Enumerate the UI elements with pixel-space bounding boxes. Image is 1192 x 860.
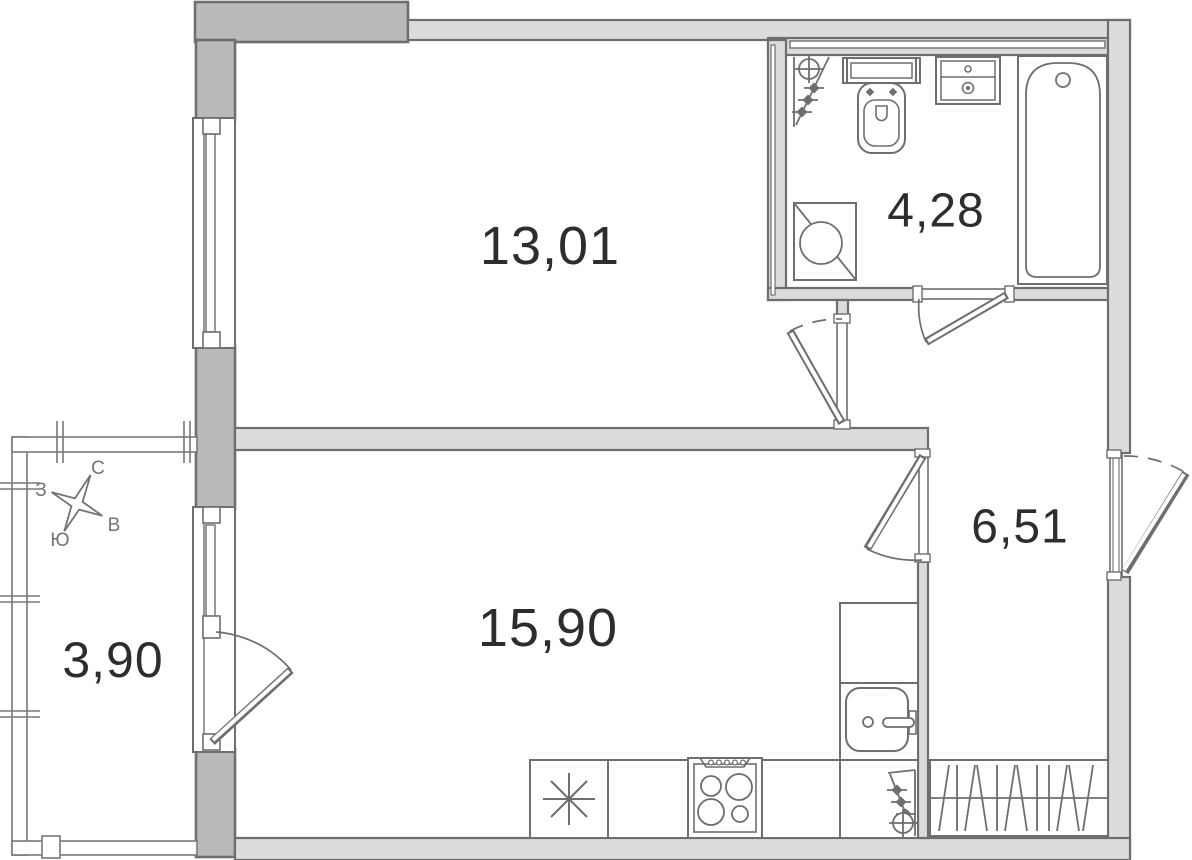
door-kitchen [867, 449, 930, 562]
compass-west: З [35, 480, 46, 501]
vent-shaft-strip [790, 41, 1105, 48]
door-leaf [926, 295, 1007, 342]
kitchen-sink-icon [846, 688, 916, 751]
compass-north: С [91, 458, 105, 479]
door-leaf [1124, 473, 1186, 572]
toilet-icon [843, 58, 920, 153]
floor-plan-drawing: С З В Ю [0, 0, 1192, 860]
room-area-hallway: 6,51 [971, 500, 1068, 555]
compass-east: В [108, 515, 121, 536]
compass-star [52, 475, 103, 531]
room-area-bathroom: 4,28 [887, 184, 984, 239]
wall-cavity-line [771, 45, 775, 295]
door-entrance [1107, 450, 1186, 580]
wardrobe-icon [930, 760, 1108, 836]
room-area-kitchen: 15,90 [478, 597, 618, 659]
heating-riser-icon [792, 55, 829, 127]
door-leaf [867, 456, 923, 549]
window-living [193, 118, 235, 348]
room-area-living: 13,01 [480, 215, 620, 277]
washing-machine-icon [794, 203, 856, 280]
door-bathroom [913, 286, 1014, 342]
interior-wall [235, 20, 1130, 860]
door-living [790, 314, 850, 429]
floor-plan: С З В Ю 13,01 4,28 6,51 15,90 3,90 [0, 0, 1192, 860]
room-area-balcony: 3,90 [62, 631, 163, 689]
bathtub-icon [1018, 56, 1107, 284]
washbasin-cabinet-icon [936, 57, 1000, 104]
door-leaf [790, 331, 842, 423]
stove-icon [688, 758, 762, 838]
walls-layer [195, 2, 1130, 860]
balcony-door-window [193, 507, 291, 752]
compass-south: Ю [50, 530, 69, 551]
compass-rose: С З В Ю [35, 458, 120, 551]
